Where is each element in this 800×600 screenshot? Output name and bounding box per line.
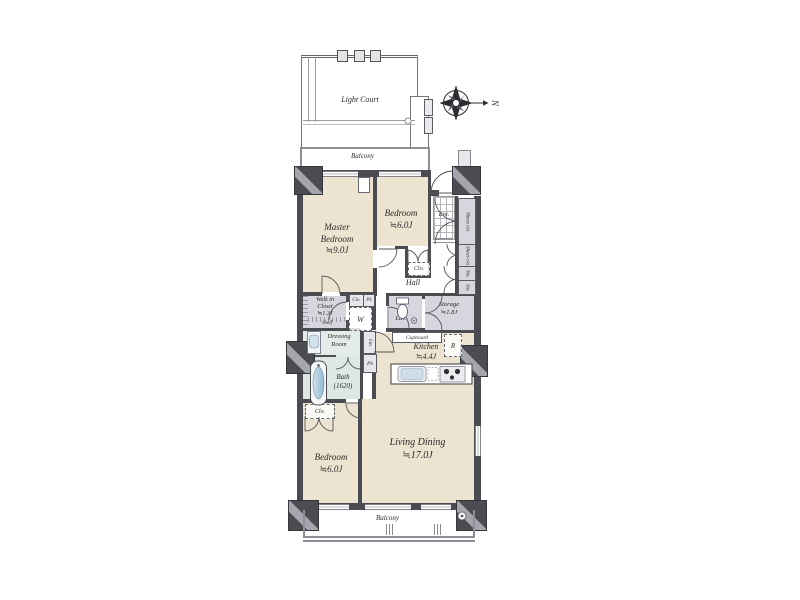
balcony-bottom-rail-right [473,510,475,538]
sto-lower: Sto. [458,280,476,295]
wall-master-bottom-left [297,292,322,296]
hall-label: Hall [392,278,434,288]
wall-entrance-recess [431,190,439,196]
bedroom-bottom-name: Bedroom [303,452,359,464]
light-court-rail-line-2 [315,57,316,122]
fence-post-3 [370,50,381,62]
wic-shelf-label: Shelf [310,321,344,328]
bath-size: (1620) [326,382,360,391]
entrance-label: Ent. [431,211,457,219]
bedroom-top-label: Bedroom ≒6.0J [372,208,430,231]
light-court-rail-line-1 [308,57,309,122]
kitchen-name: Kitchen [395,342,457,352]
kitchen-size: ≒4.4J [395,352,457,362]
shoes-closet-upper: Shoes clo. [458,198,476,246]
wic-line2: Closet [304,304,346,311]
fence-post-1 [337,50,348,62]
window-living-2 [421,504,451,510]
wall-bath-bottom [303,399,346,403]
storage-size: ≒1.8J [425,309,473,317]
wall-lav-left-upper [386,296,389,306]
compass-north-label: N [490,99,500,107]
storage-name: Storage [425,301,473,309]
pillar-mid-right [460,345,488,377]
master-bedroom-size: ≒9.0J [300,245,374,257]
wall-bedroom-bottom-right [358,399,362,503]
closet-bedroom-top: Clo. [408,262,430,276]
shoes-closet-lower: Shoes clo. [458,244,476,268]
balcony-partition-mark-1 [386,524,393,535]
master-bedroom-line1: Master [300,222,374,234]
fence-post-2 [354,50,365,62]
master-bedroom-label: Master Bedroom ≒9.0J [300,222,374,257]
pillar-top-left [294,166,323,195]
dressing-room-label: Dressing Room [318,333,360,349]
wall-storage-left-stub [422,293,425,299]
living-dining-size: ≒17.0J [375,449,460,462]
balcony-top-rail-right [428,147,430,170]
living-dining-label: Living Dining ≒17.0J [375,436,460,462]
floor-plan: Light Court Balcony [0,0,800,600]
window-living-1 [365,504,411,510]
balcony-top-rail [300,147,430,149]
wic-line1: Walk in [304,297,346,304]
kitchen-label: Kitchen ≒4.4J [395,342,457,363]
balcony-top-label: Balcony [315,152,410,161]
pillar-top-right [452,166,481,195]
entrance-step-2 [433,242,455,243]
walk-in-closet-label: Walk in Closet ≒1.3J [304,297,346,318]
window-pier-box [358,177,370,193]
ps-bath: PS [363,354,377,373]
dressing-line2: Room [318,341,360,349]
balcony-bottom-label: Balcony [340,514,435,523]
entrance-step-1 [435,238,453,239]
bath-name: Bath [326,373,360,382]
pillar-mid-left [286,341,315,374]
balcony-bottom-rail-1 [303,536,475,538]
bedroom-bottom-size: ≒6.0J [303,464,359,476]
light-court-label: Light Court [305,95,415,105]
light-court-inner-line-2 [303,124,415,125]
bath-label: Bath (1620) [326,373,360,391]
master-bedroom-line2: Bedroom [300,234,374,246]
wic-size: ≒1.3J [304,311,346,318]
balcony-partition-mark-2 [434,524,441,535]
light-court-inner-line-1 [303,120,415,121]
light-court-window-2 [424,117,433,134]
storage-label: Storage ≒1.8J [425,301,473,318]
closet-bedroom-bottom: Clo. [305,404,335,419]
balcony-bottom-rail-left [303,510,305,538]
window-living-right [475,426,481,456]
living-dining-name: Living Dining [375,436,460,449]
bedroom-top-name: Bedroom [372,208,430,220]
dressing-line1: Dressing [318,333,360,341]
window-bedroom-top [379,171,421,177]
linen-box: Lin. [363,331,376,354]
closet-hall: Clo. [349,294,364,307]
light-court-window-1 [424,99,433,116]
lavatory-label: Lav. [390,315,412,323]
balcony-bottom-rail-2 [303,540,475,542]
washer-box: W [349,307,372,331]
compass-icon: N [440,86,500,120]
pillar-bottom-right [456,500,487,531]
bedroom-top-size: ≒6.0J [372,220,430,232]
bedroom-bottom-label: Bedroom ≒6.0J [303,452,359,475]
ps-hall: PS [363,294,375,307]
